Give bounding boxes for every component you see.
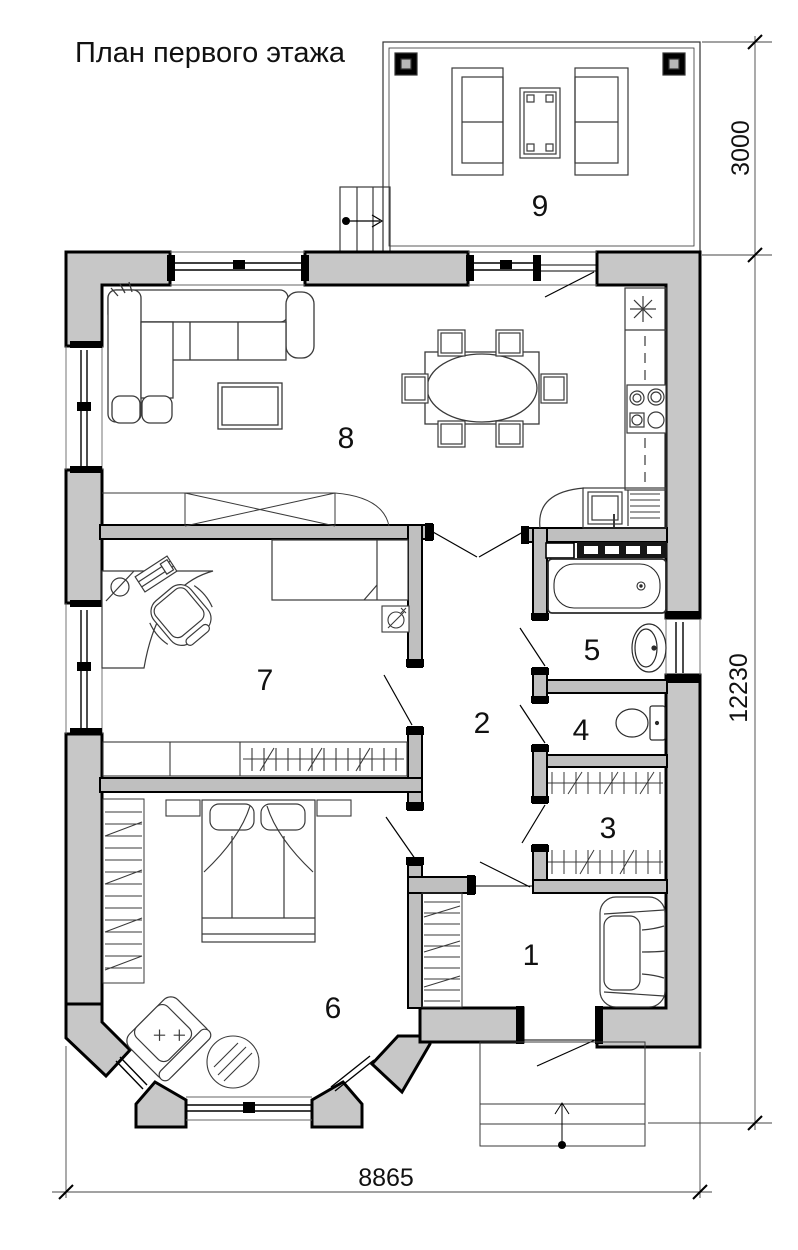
column-icon	[395, 53, 417, 75]
entrance-porch	[480, 1042, 645, 1149]
stove	[627, 385, 666, 433]
dining-table	[425, 352, 539, 424]
room-label-9: 9	[532, 190, 549, 223]
wardrobe-room6	[103, 799, 144, 983]
dim-terrace-depth: 3000	[727, 120, 755, 176]
entrance-sofa	[600, 897, 666, 1007]
room-label-7: 7	[257, 664, 274, 697]
room-label-1: 1	[523, 939, 540, 972]
dim-house-width: 8865	[358, 1164, 414, 1192]
wardrobe-room7	[103, 742, 407, 776]
room-label-8: 8	[338, 422, 355, 455]
bathroom-sink	[632, 624, 666, 672]
plant-table	[382, 606, 409, 632]
page-title: План первого этажа	[75, 37, 346, 69]
room-label-6: 6	[325, 992, 342, 1025]
room-label-5: 5	[584, 634, 601, 667]
garden-table	[520, 88, 560, 158]
dining-chairs	[402, 330, 567, 447]
toilet	[616, 706, 665, 740]
nightstand	[166, 800, 200, 816]
lounge-chair	[575, 68, 628, 175]
cooker-hood-icon	[630, 296, 656, 322]
floor-plan-drawing: План первого этажа	[0, 0, 798, 1250]
nightstand	[317, 800, 351, 816]
room-label-4: 4	[573, 714, 590, 747]
terrace	[340, 42, 700, 253]
dim-house-length: 12230	[725, 653, 753, 723]
corner-sofa	[108, 282, 314, 423]
double-bed	[202, 800, 315, 942]
washing-machine	[546, 542, 667, 558]
tv-cabinet	[102, 493, 389, 526]
room-label-3: 3	[600, 812, 617, 845]
floor-plan-page: План первого этажа	[0, 0, 798, 1250]
single-bed	[272, 540, 408, 600]
coffee-table	[218, 383, 282, 429]
round-rug	[207, 1036, 259, 1088]
column-icon	[663, 53, 685, 75]
bathtub	[548, 559, 666, 613]
room-label-2: 2	[474, 707, 491, 740]
armchair	[123, 993, 214, 1084]
lounge-chair	[452, 68, 503, 175]
hall-closet	[422, 893, 462, 1007]
kitchen-sink	[588, 490, 660, 527]
